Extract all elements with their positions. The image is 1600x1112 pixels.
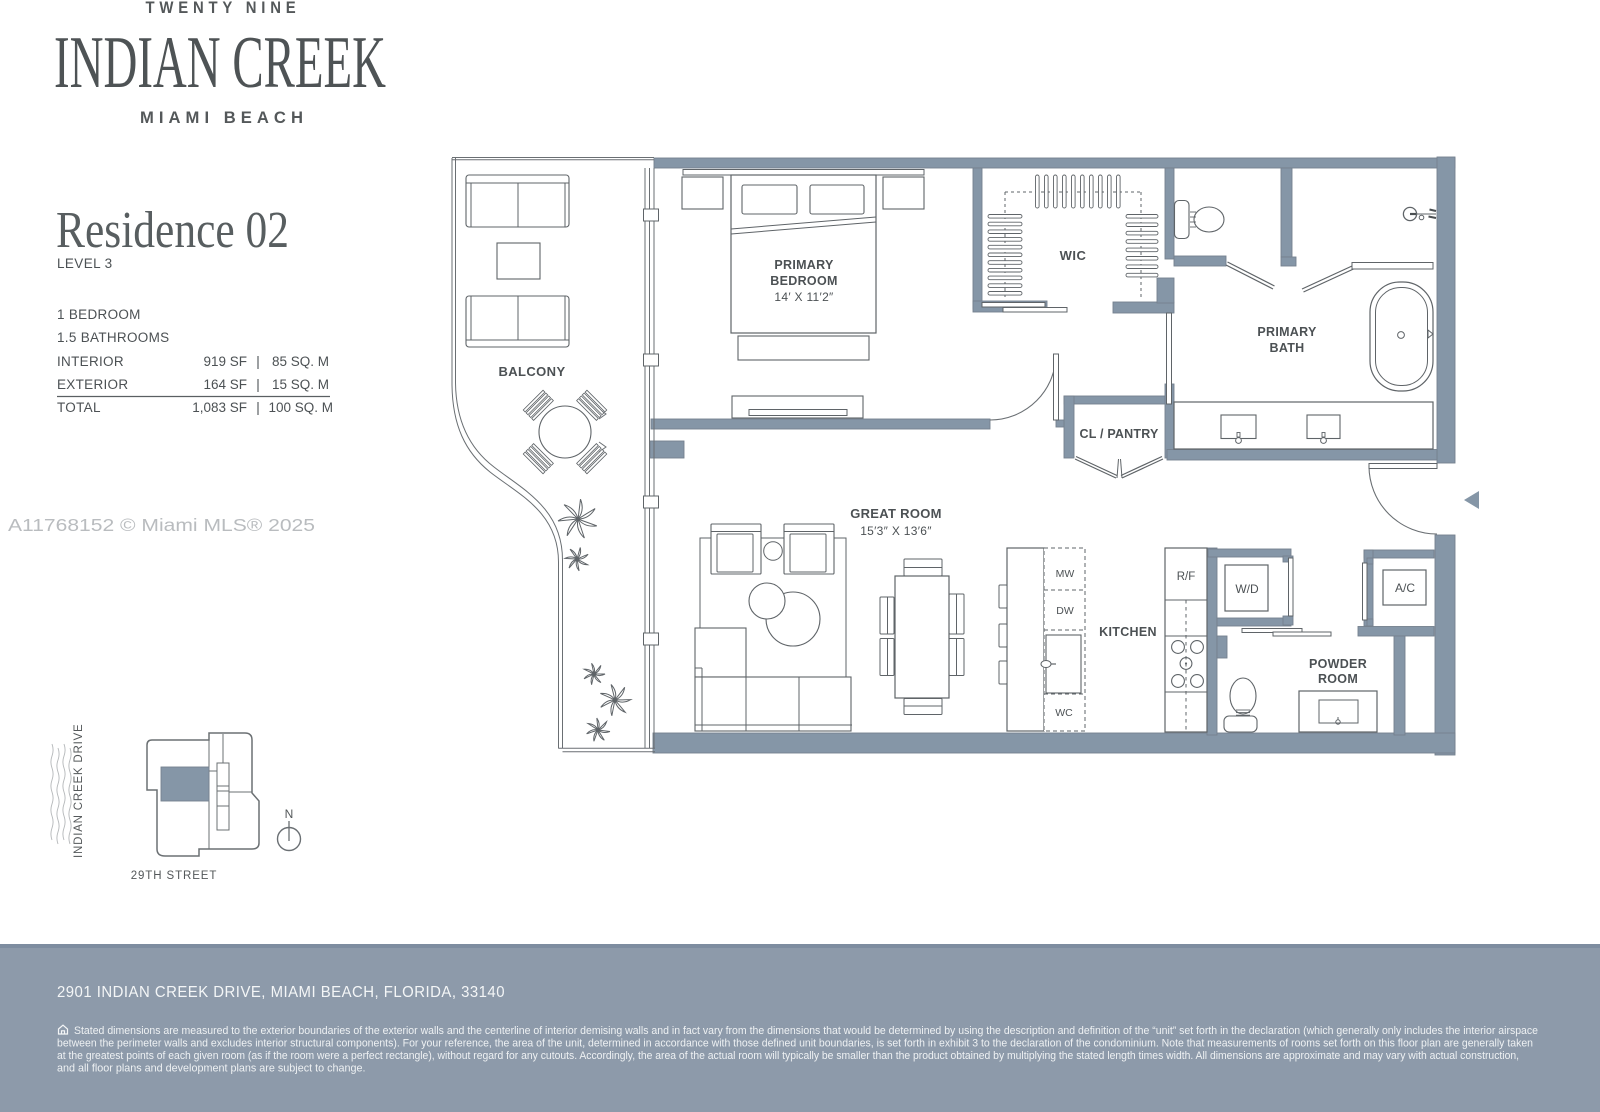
svg-text:100 SQ. M: 100 SQ. M bbox=[268, 400, 333, 415]
svg-text:LEVEL 3: LEVEL 3 bbox=[57, 256, 113, 271]
svg-text:DW: DW bbox=[1056, 605, 1074, 617]
svg-text:Residence 02: Residence 02 bbox=[56, 202, 289, 259]
svg-text:1,083 SF: 1,083 SF bbox=[192, 400, 247, 415]
svg-text:GREAT ROOM: GREAT ROOM bbox=[850, 506, 942, 521]
svg-text:MW: MW bbox=[1056, 568, 1075, 580]
svg-text:TWENTY NINE: TWENTY NINE bbox=[146, 0, 301, 17]
svg-text:INTERIOR: INTERIOR bbox=[57, 354, 124, 369]
svg-text:INDIAN CREEK DRIVE: INDIAN CREEK DRIVE bbox=[73, 723, 85, 858]
svg-text:WIC: WIC bbox=[1060, 248, 1087, 263]
svg-text:2901 INDIAN CREEK DRIVE, MIAMI: 2901 INDIAN CREEK DRIVE, MIAMI BEACH, FL… bbox=[57, 984, 505, 1001]
svg-text:|: | bbox=[256, 354, 260, 369]
svg-text:ROOM: ROOM bbox=[1318, 672, 1358, 686]
svg-text:14′ X 11′2″: 14′ X 11′2″ bbox=[774, 290, 834, 304]
svg-text:CL / PANTRY: CL / PANTRY bbox=[1079, 427, 1159, 441]
svg-text:KITCHEN: KITCHEN bbox=[1099, 625, 1157, 639]
svg-text:29TH STREET: 29TH STREET bbox=[131, 870, 218, 882]
svg-text:N: N bbox=[285, 807, 294, 821]
svg-text:15 SQ. M: 15 SQ. M bbox=[272, 377, 329, 392]
svg-text:|: | bbox=[256, 377, 260, 392]
svg-text:Stated dimensions are measured: Stated dimensions are measured to the ex… bbox=[74, 1025, 1538, 1037]
svg-text:BALCONY: BALCONY bbox=[498, 364, 565, 379]
svg-text:EXTERIOR: EXTERIOR bbox=[57, 377, 128, 392]
svg-text:BATH: BATH bbox=[1270, 341, 1305, 355]
svg-text:and all floor plans and develo: and all floor plans and development plan… bbox=[57, 1063, 366, 1075]
svg-text:919 SF: 919 SF bbox=[203, 354, 247, 369]
svg-text:at the greatest points of each: at the greatest points of each given roo… bbox=[57, 1050, 1519, 1062]
svg-text:between the perimeter walls an: between the perimeter walls and excludes… bbox=[57, 1038, 1533, 1050]
svg-text:1.5 BATHROOMS: 1.5 BATHROOMS bbox=[57, 330, 169, 345]
svg-text:POWDER: POWDER bbox=[1309, 657, 1367, 671]
svg-text:PRIMARY: PRIMARY bbox=[774, 258, 834, 272]
svg-text:INDIAN CREEK: INDIAN CREEK bbox=[54, 22, 386, 104]
svg-text:R/F: R/F bbox=[1177, 571, 1196, 583]
svg-text:BEDROOM: BEDROOM bbox=[770, 274, 837, 288]
svg-text:A11768152 © Miami MLS® 2025: A11768152 © Miami MLS® 2025 bbox=[8, 515, 315, 535]
svg-text:MIAMI BEACH: MIAMI BEACH bbox=[140, 109, 308, 127]
svg-text:|: | bbox=[256, 400, 260, 415]
svg-text:W/D: W/D bbox=[1235, 582, 1259, 596]
svg-text:PRIMARY: PRIMARY bbox=[1257, 325, 1317, 339]
svg-text:WC: WC bbox=[1055, 707, 1073, 719]
svg-text:A/C: A/C bbox=[1395, 581, 1415, 595]
svg-text:164 SF: 164 SF bbox=[203, 377, 247, 392]
svg-text:85 SQ. M: 85 SQ. M bbox=[272, 354, 329, 369]
svg-text:TOTAL: TOTAL bbox=[57, 400, 101, 415]
svg-text:15′3″ X 13′6″: 15′3″ X 13′6″ bbox=[860, 524, 932, 538]
svg-text:1 BEDROOM: 1 BEDROOM bbox=[57, 307, 141, 322]
